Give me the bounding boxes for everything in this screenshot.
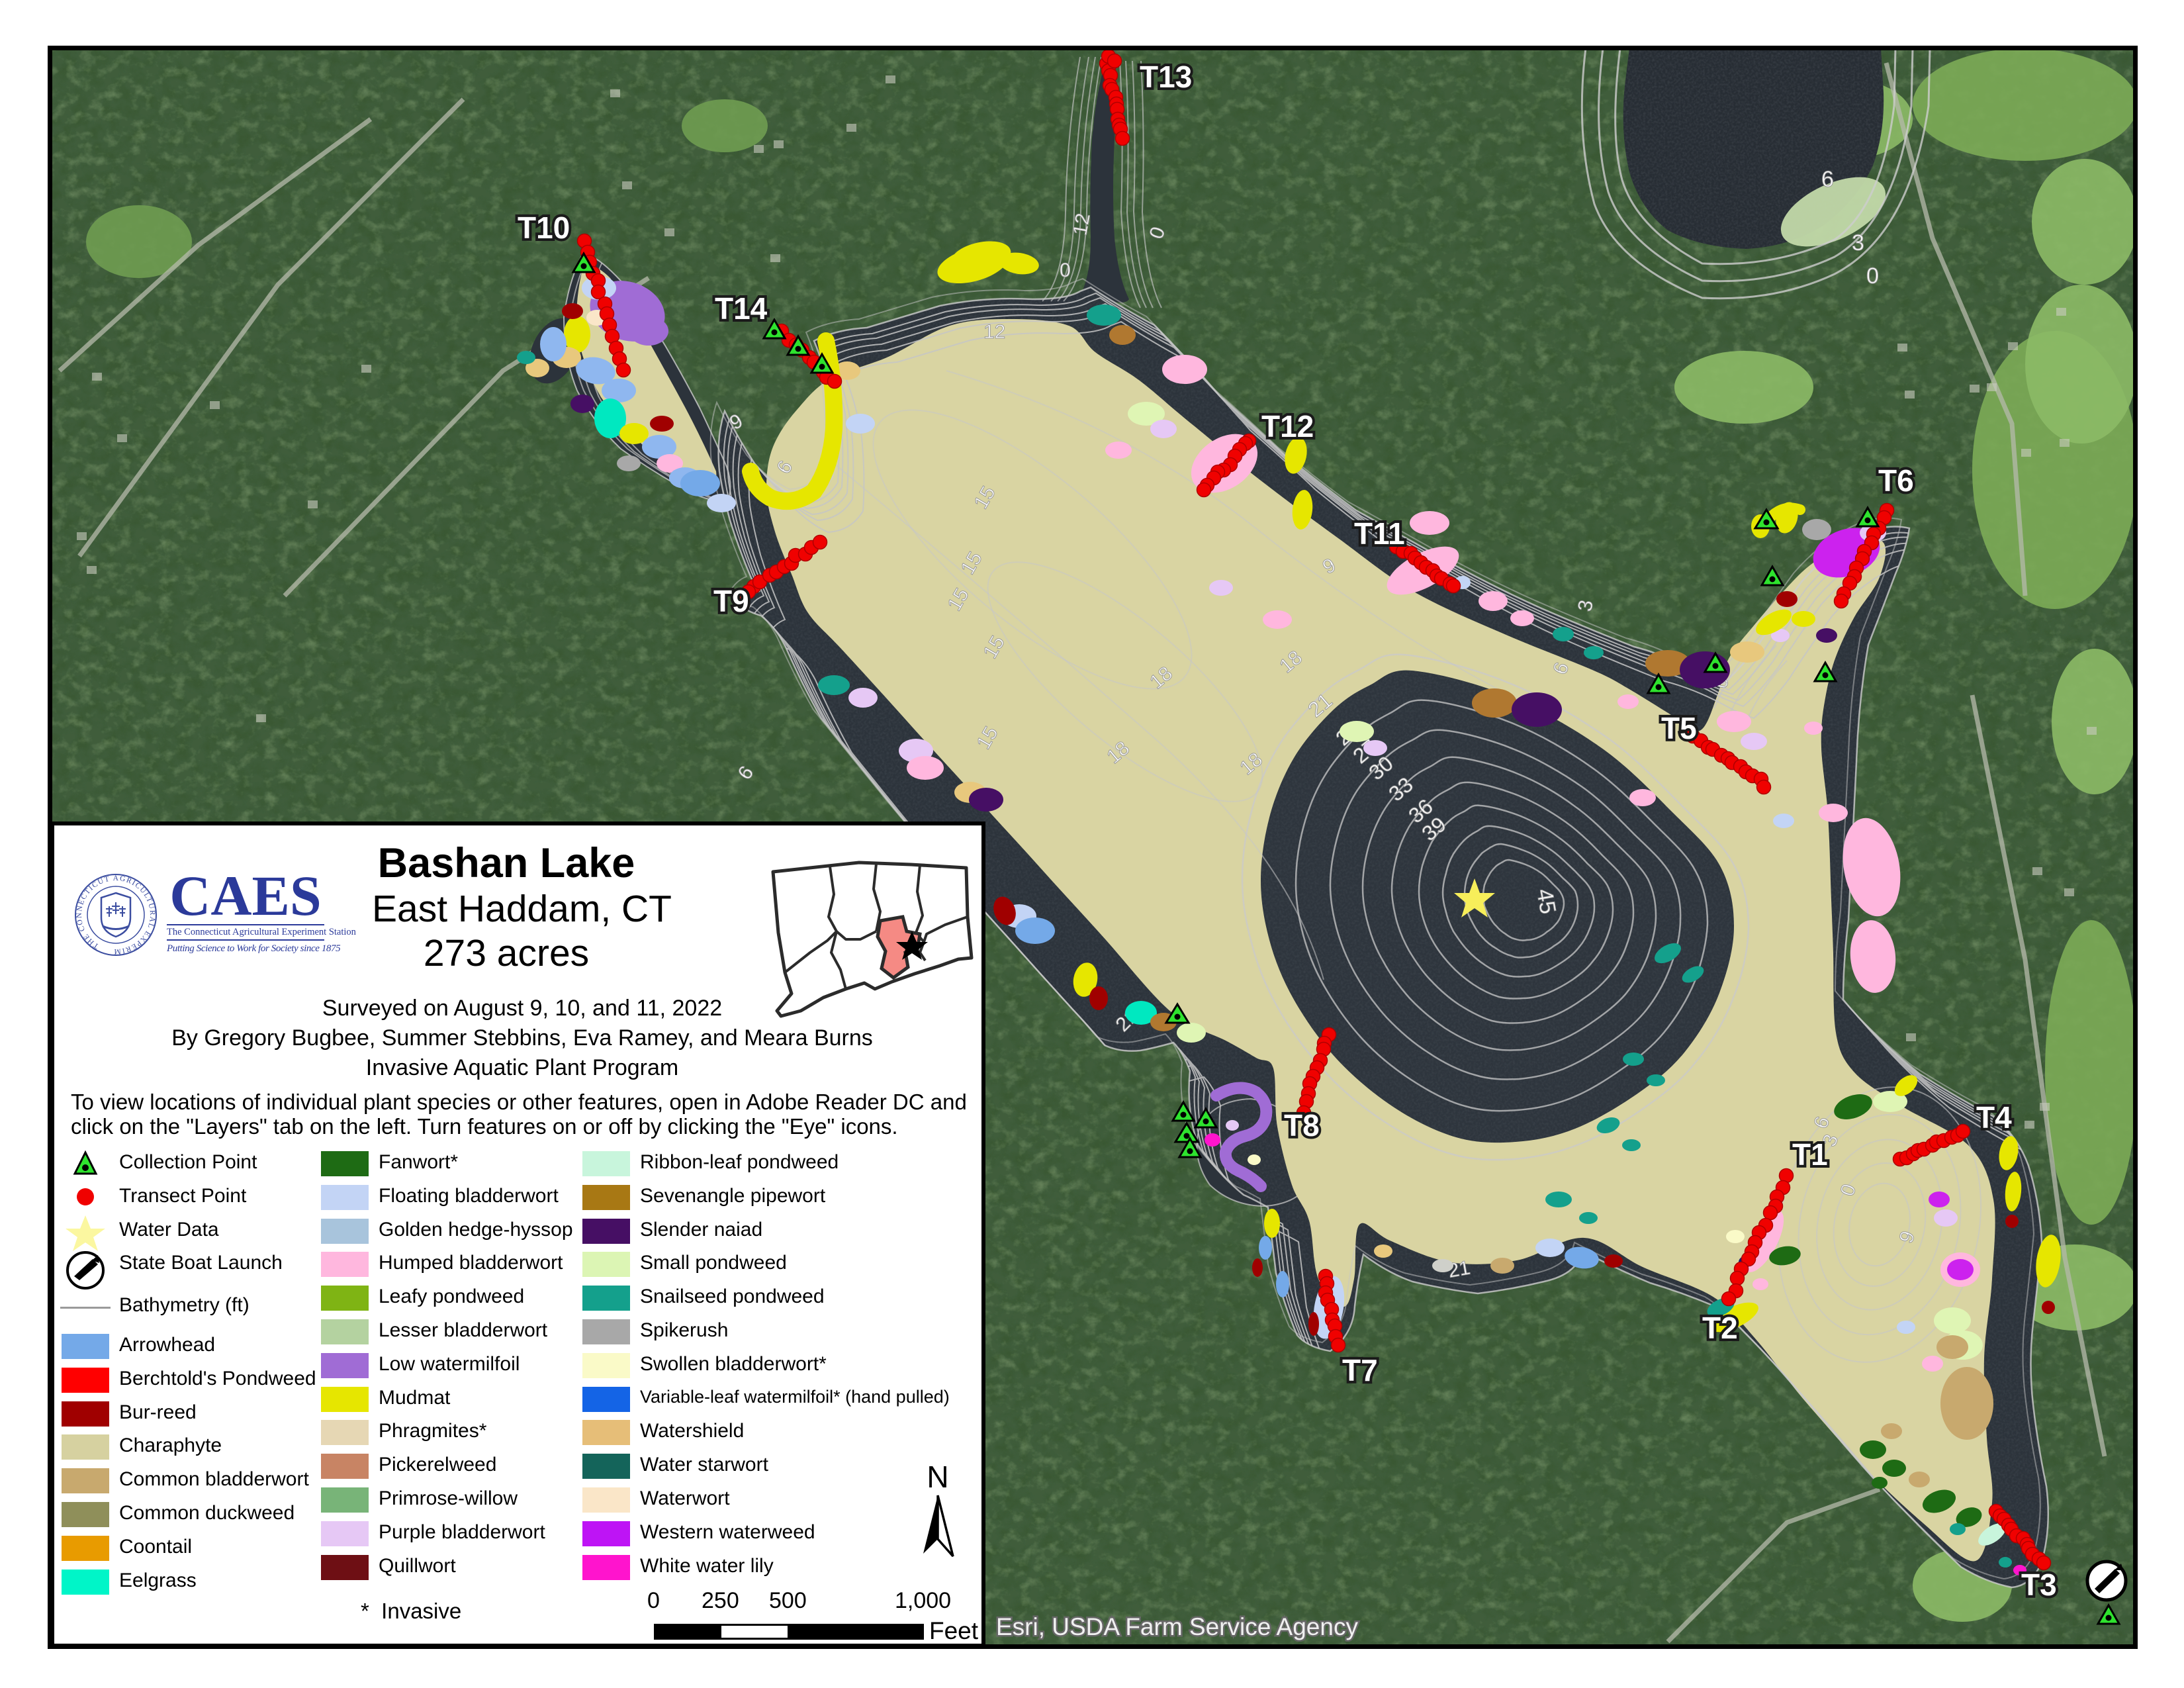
svg-text:6: 6 [1821, 167, 1834, 192]
svg-text:T6: T6 [1878, 463, 1914, 498]
svg-text:T12: T12 [1261, 409, 1314, 444]
svg-text:3: 3 [1852, 230, 1864, 256]
svg-text:T5: T5 [1661, 711, 1697, 745]
svg-text:0: 0 [1866, 263, 1879, 289]
svg-text:T7: T7 [1342, 1353, 1378, 1387]
svg-text:12: 12 [1069, 212, 1094, 238]
svg-text:T8: T8 [1284, 1108, 1320, 1143]
svg-text:0: 0 [1060, 259, 1071, 281]
svg-text:12: 12 [983, 321, 1005, 343]
svg-text:T13: T13 [1140, 60, 1192, 94]
svg-text:Esri, USDA Farm Service Agency: Esri, USDA Farm Service Agency [996, 1613, 1358, 1640]
svg-text:T9: T9 [713, 584, 749, 618]
svg-text:T14: T14 [715, 291, 768, 326]
svg-text:T4: T4 [1976, 1100, 2012, 1135]
svg-text:45: 45 [1531, 887, 1561, 916]
svg-text:T2: T2 [1702, 1311, 1738, 1345]
svg-text:T1: T1 [1792, 1137, 1828, 1172]
svg-text:T3: T3 [2021, 1568, 2057, 1602]
svg-text:T10: T10 [518, 211, 570, 245]
svg-text:T11: T11 [1354, 516, 1405, 551]
svg-text:N: N [927, 1462, 948, 1494]
